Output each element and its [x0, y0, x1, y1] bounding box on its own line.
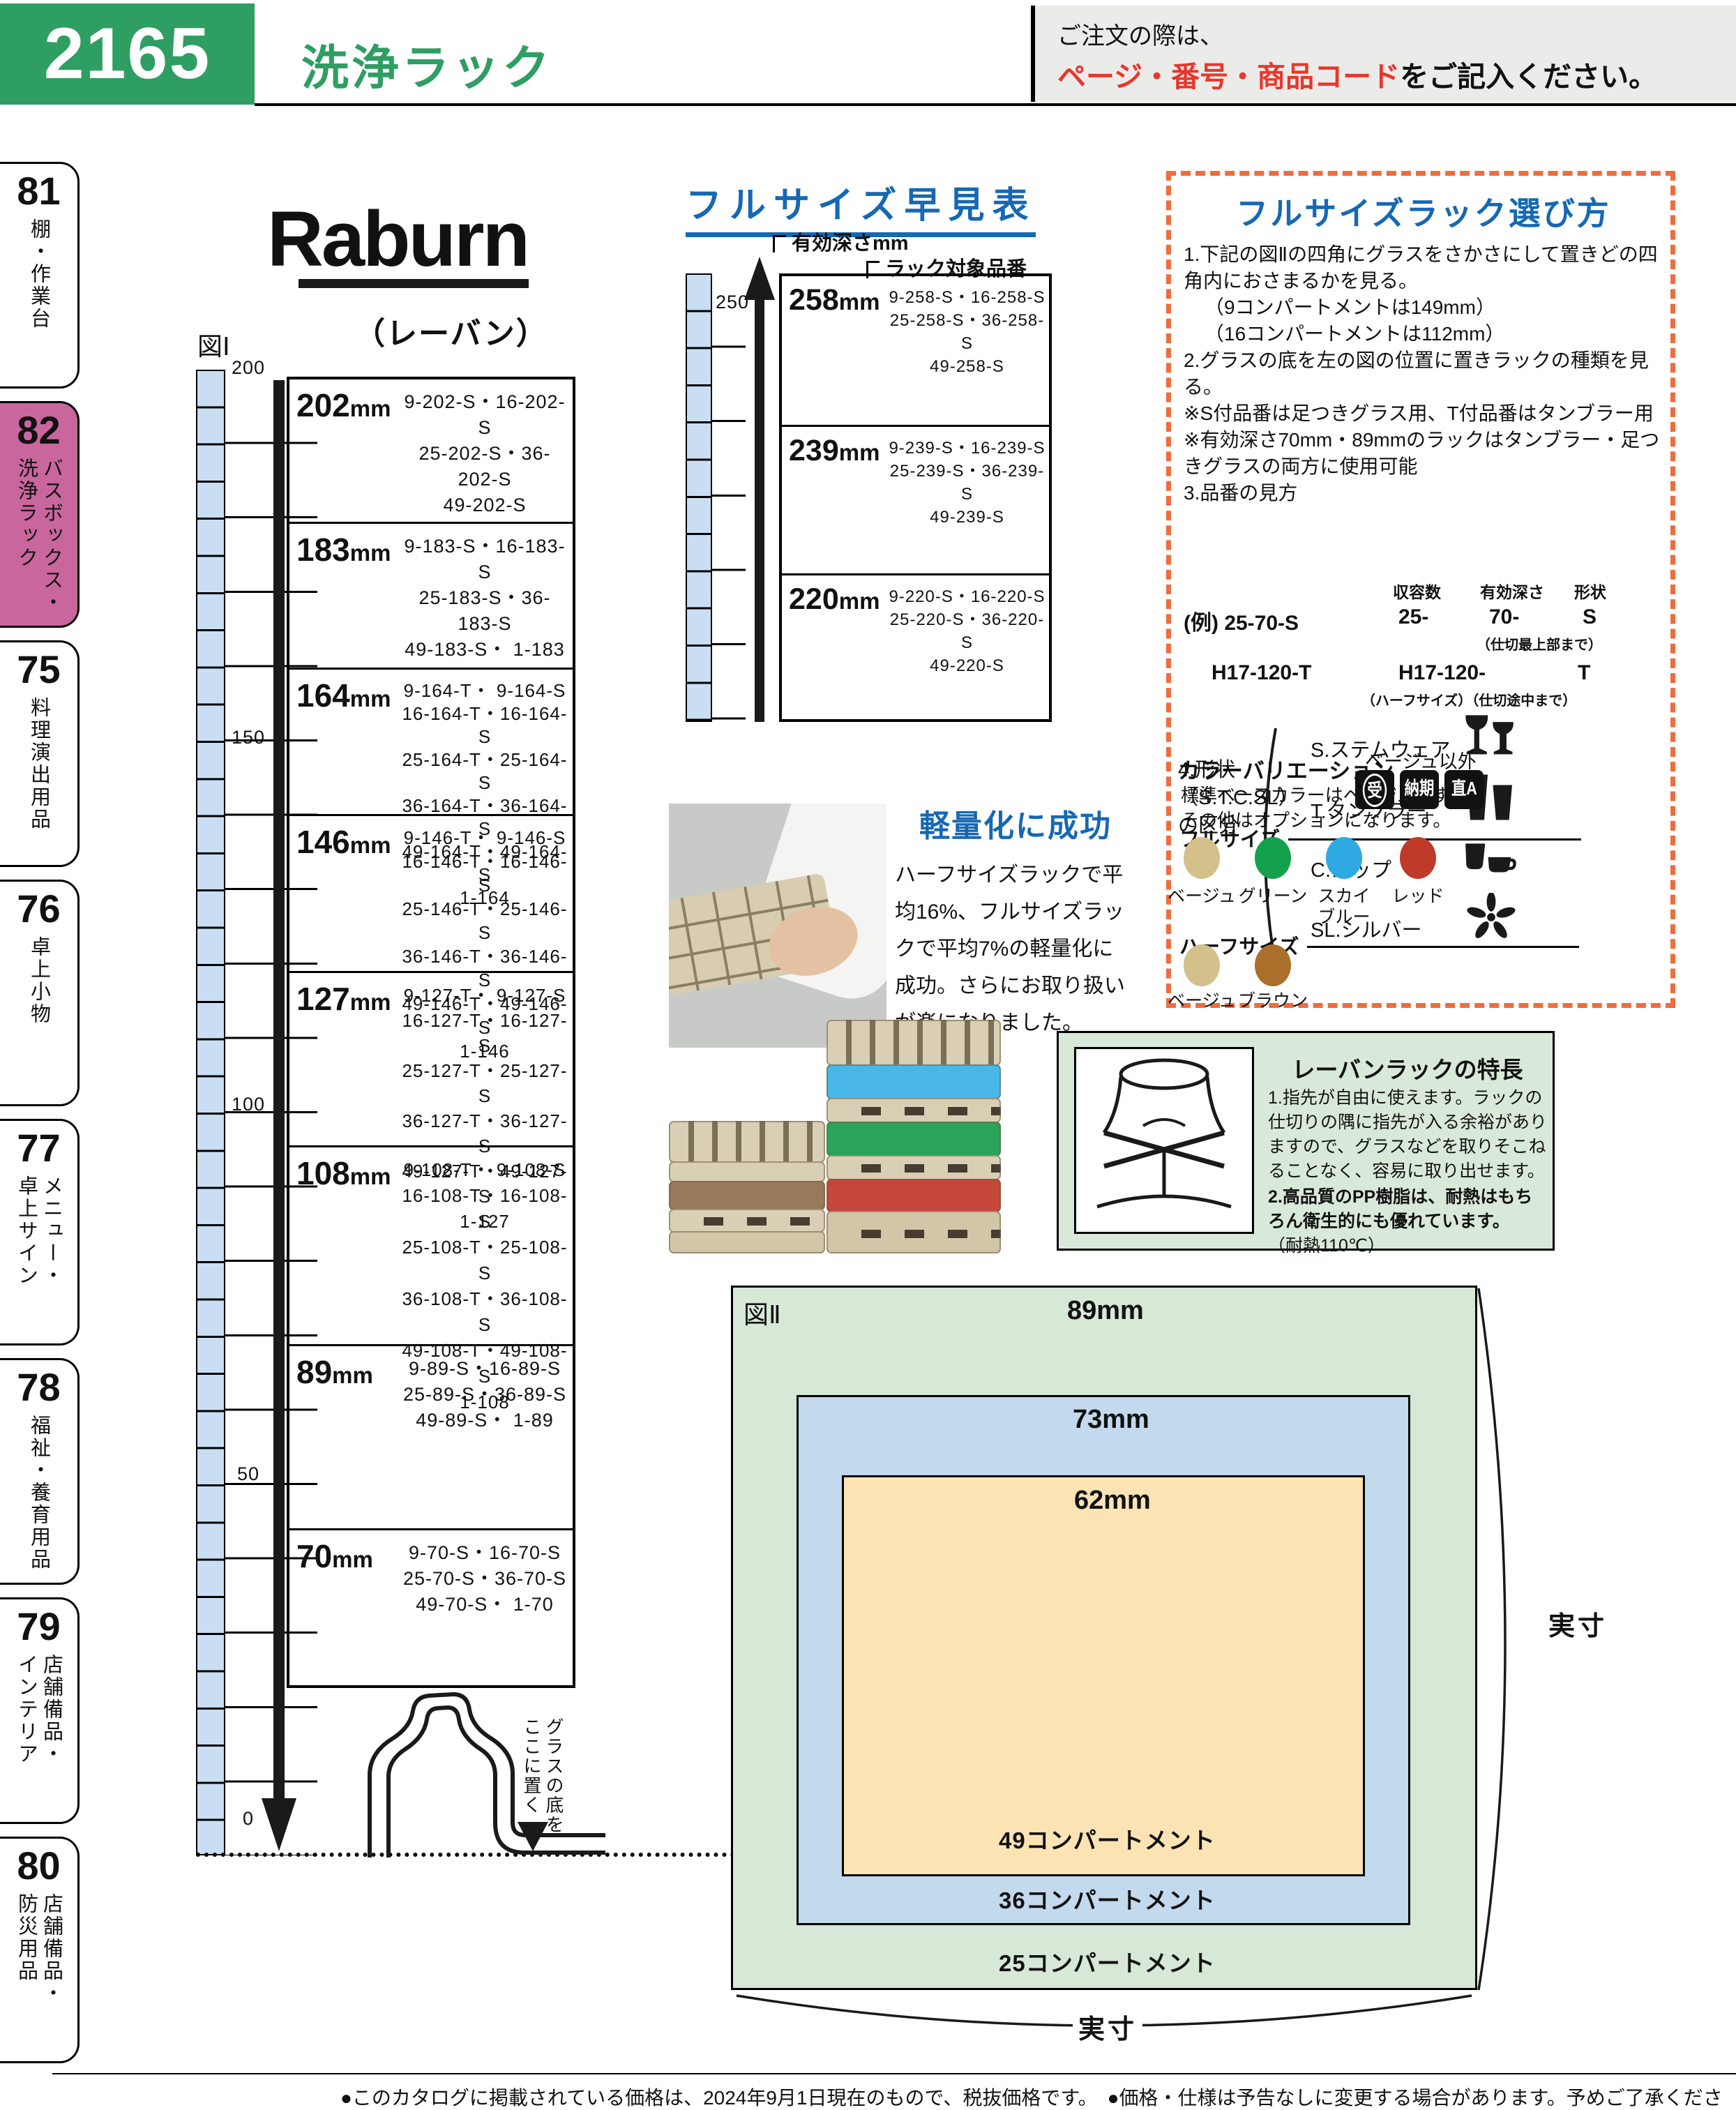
spec-value: H17-120-: [1398, 661, 1486, 685]
features-item2-note: （耐熱110℃）: [1268, 1236, 1385, 1256]
rack-band-beige: [669, 1231, 825, 1253]
footer-rule: [52, 2073, 1736, 2074]
sidebar-tab-77: 77メニュー・ 卓上サイン: [0, 1119, 80, 1346]
sidebar-tab-78: 78福祉・養育用品: [0, 1358, 80, 1585]
howto-note2: ※有効深さ70mm・89mmのラックはタンブラー・足つきグラスの両方に使用可能: [1184, 427, 1663, 480]
fig2-rect-49: [842, 1475, 1365, 1876]
glass-place-note: グラスの底を ここに置く: [520, 1717, 565, 1834]
rack-band-green: [827, 1122, 1001, 1156]
rack-band-beige: [669, 1161, 825, 1182]
swatch-label: レッド: [1383, 886, 1453, 907]
spec-header: 有効深さ: [1480, 579, 1544, 603]
howto-step2: 2.グラスの底を左の図の位置に置きラックの種類を見る。: [1184, 347, 1663, 400]
fig1-ruler: [196, 370, 225, 1855]
glass-place-arrow-icon: [518, 1822, 548, 1851]
howto-step1a: （9コンパートメントは149mm）: [1184, 294, 1663, 321]
spec-example1: (例) 25-70-S: [1184, 605, 1299, 636]
sidebar-tab-81: 81棚・作業台: [0, 162, 80, 389]
sidebar-tab-79: 79店舗備品・ インテリア: [0, 1597, 80, 1824]
tab-label: バスボックス・ 洗浄ラック: [14, 458, 64, 614]
howto-step3: 3.品番の見方: [1184, 480, 1663, 506]
fig1-size-table: 202mm 9-202-S・16-202-S25-202-S・36-202-S4…: [287, 377, 575, 1688]
tab-label: 福祉・養育用品: [27, 1415, 52, 1571]
spec-example2: H17-120-T: [1212, 661, 1311, 685]
lightweight-body: ハーフサイズラックで平均16%、フルサイズラックで平均7%の軽量化に成功。さらに…: [895, 857, 1125, 1041]
feature-illustration: [1074, 1047, 1254, 1234]
spec-value: 25-: [1398, 605, 1428, 629]
howto-note1: ※S付品番は足つきグラス用、T付品番はタンブラー用: [1184, 400, 1663, 427]
lightweight-photo: [669, 804, 886, 1048]
order-note-line2: ページ・番号・商品コードをご記入ください。: [1057, 53, 1657, 95]
swatch-label: スカイ ブルー: [1309, 886, 1379, 928]
ruler-tick-150: 150: [232, 727, 265, 748]
rack-band-beige: [827, 1155, 1001, 1180]
tab-number: 80: [0, 1839, 77, 1888]
ruler-tick-50: 50: [237, 1463, 259, 1485]
tab-number: 79: [0, 1599, 77, 1649]
racks-photo-left-stack: [669, 1121, 825, 1253]
spec-note: （ハーフサイズ）（仕切途中まで）: [1361, 689, 1576, 709]
fig2-36comp: 36コンパートメント: [999, 1882, 1216, 1915]
size-row-183: 183mm 9-183-S・16-183-S25-183-S・36-183-S4…: [289, 522, 573, 668]
tab-number: 81: [0, 164, 77, 213]
header-rule: [255, 103, 1736, 106]
racks-photo-right-stack: [827, 1020, 1001, 1253]
howto-step1: 1.下記の図Ⅱの四角にグラスをさかさにして置きどの四角内におさまるかを見る。: [1184, 241, 1663, 294]
swatch-green: [1255, 837, 1291, 879]
depth-arrow-shaft: [273, 380, 285, 1800]
page-number: 2165: [0, 3, 255, 105]
size-row-127: 127mm 9-127-T・ 9-127-S16-127-T・16-127-S2…: [289, 971, 573, 1145]
quick-ruler-ticks: [712, 273, 746, 722]
badge-chokuA-icon: 直A: [1444, 770, 1484, 809]
tab-label: 棚・作業台: [27, 218, 52, 330]
order-note-suffix: をご記入ください。: [1400, 61, 1657, 93]
tab-number: 82: [0, 403, 77, 453]
halfsize-label: ハーフサイズ: [1179, 930, 1579, 960]
fig2-25comp: 25コンパートメント: [999, 1945, 1216, 1978]
size-row-89: 89mm 9-89-S・16-89-S25-89-S・36-89-S49-89-…: [289, 1344, 573, 1528]
fullsize-label: フルサイズ: [1179, 823, 1581, 852]
howto-title: フルサイズラック選び方: [1184, 188, 1663, 234]
tab-label: 料理演出用品: [27, 697, 52, 831]
swatch-beige: [1184, 837, 1220, 879]
sidebar-tab-75: 75料理演出用品: [0, 640, 80, 867]
tab-number: 78: [0, 1360, 77, 1410]
tab-label: 卓上小物: [27, 936, 52, 1025]
swatch-label: ブラウン: [1238, 990, 1308, 1011]
size-row-239: 239mm 9-239-S・16-239-S25-239-S・36-239-S4…: [782, 425, 1049, 573]
rack-lattice: [827, 1020, 1001, 1066]
depth-arrow-down-icon: [262, 1798, 296, 1851]
tab-number: 76: [0, 882, 77, 931]
order-note-red: ページ・番号・商品コード: [1057, 61, 1400, 93]
ruler-tick-200: 200: [232, 357, 265, 379]
glass-outline-drawing: [349, 1671, 607, 1857]
features-title: レーバンラックの特長: [1268, 1051, 1547, 1085]
fig2-right-brace: [1472, 1286, 1548, 2046]
tab-label: 店舗備品・ インテリア: [14, 1654, 64, 1765]
brand-logo: Raburn: [267, 194, 528, 284]
fig2-73mm: 73mm: [1073, 1405, 1149, 1435]
swatch-brown: [1255, 944, 1291, 986]
page-title: 洗浄ラック: [301, 29, 552, 98]
spec-value: S: [1583, 605, 1597, 629]
rack-band-brown: [669, 1181, 825, 1210]
brand-logo-underline: [299, 279, 529, 288]
actual-size-right: 実寸: [1543, 1604, 1613, 1643]
swatch-beige-half: [1184, 944, 1220, 986]
swatch-skyblue: [1326, 837, 1362, 879]
order-note-line1: ご注文の際は、: [1057, 17, 1223, 51]
spec-header: 形状: [1574, 579, 1606, 603]
badge-nouki-icon: 納期: [1400, 770, 1439, 809]
howto-box: フルサイズラック選び方 1.下記の図Ⅱの四角にグラスをさかさにして置きどの四角内…: [1166, 171, 1675, 1008]
tab-number: 75: [0, 642, 77, 692]
rack-band-beige: [669, 1209, 825, 1233]
size-row-220: 220mm 9-220-S・16-220-S25-220-S・36-220-S4…: [782, 573, 1049, 719]
sidebar-tab-76: 76卓上小物: [0, 880, 80, 1106]
fig2-49comp: 49コンパートメント: [999, 1822, 1216, 1855]
fig2-89mm: 89mm: [1067, 1296, 1144, 1326]
sidebar-tab-80: 80店舗備品・ 防災用品: [0, 1837, 80, 2063]
corner-bracket-icon: [773, 235, 786, 253]
order-note-box: ご注文の際は、 ページ・番号・商品コードをご記入ください。: [1031, 6, 1736, 102]
spec-value: T: [1578, 661, 1590, 685]
lightweight-title: 軽量化に成功: [919, 801, 1112, 845]
swatch-red: [1400, 837, 1436, 879]
swatch-label: グリーン: [1238, 886, 1308, 907]
quick-size-table: 258mm 9-258-S・16-258-S25-258-S・36-258-S4…: [779, 273, 1052, 722]
size-row-146: 146mm 9-146-T・ 9-146-S16-146-T・16-146-S2…: [289, 814, 573, 971]
tab-label: メニュー・ 卓上サイン: [14, 1175, 64, 1287]
up-arrow-icon: [744, 257, 775, 300]
ruler-tick-0: 0: [243, 1808, 254, 1830]
rack-band-beige: [827, 1211, 1001, 1253]
spec-value: 70-: [1489, 605, 1519, 629]
rack-lattice: [669, 1121, 825, 1163]
badge-uke-icon: 受: [1355, 770, 1394, 809]
features-item1: 1.指先が自由に使えます。ラックの仕切りの隅に指先が入る余裕がありますので、グラ…: [1268, 1086, 1548, 1184]
actual-size-bottom: 実寸: [1073, 2007, 1142, 2046]
rack-band-skyblue: [827, 1064, 1001, 1099]
size-row-70: 70mm 9-70-S・16-70-S25-70-S・36-70-S49-70-…: [289, 1528, 573, 1685]
size-row-164: 164mm 9-164-T・ 9-164-S16-164-T・16-164-S2…: [289, 668, 573, 814]
fig2-62mm: 62mm: [1074, 1486, 1151, 1516]
features-box: レーバンラックの特長 1.指先が自由に使えます。ラックの仕切りの隅に指先が入る余…: [1057, 1031, 1555, 1251]
spec-header: 収容数: [1393, 579, 1441, 603]
size-row-108: 108mm 9-108-T・ 9-108-S16-108-T・16-108-S2…: [289, 1145, 573, 1344]
up-arrow-shaft: [755, 299, 764, 722]
brand-kana: （レーバン）: [354, 308, 548, 353]
size-row-258: 258mm 9-258-S・16-258-S25-258-S・36-258-S4…: [782, 276, 1049, 425]
fig1-label: 図Ⅰ: [197, 326, 230, 363]
howto-step1b: （16コンパートメントは112mm）: [1184, 321, 1663, 347]
spec-note: （仕切最上部まで）: [1477, 633, 1602, 654]
swatch-label: ベージュ: [1167, 886, 1237, 907]
tab-label: 店舗備品・ 防災用品: [14, 1893, 64, 2005]
ruler-tick-100: 100: [232, 1094, 265, 1115]
fig2-label: 図Ⅱ: [744, 1295, 781, 1331]
depth-label: 有効深さmm: [773, 227, 909, 256]
tab-number: 77: [0, 1121, 77, 1170]
size-row-202: 202mm 9-202-S・16-202-S25-202-S・36-202-S4…: [289, 379, 573, 522]
features-item2: 2.高品質のPP樹脂は、耐熱はもちろん衛生的にも優れています。（耐熱110℃）: [1268, 1185, 1548, 1258]
rack-band-red: [827, 1179, 1001, 1212]
catalog-page: 2165 洗浄ラック ご注文の際は、 ページ・番号・商品コードをご記入ください。…: [0, 0, 1736, 2110]
sidebar-tab-82-active: 82バスボックス・ 洗浄ラック: [0, 401, 80, 628]
swatch-label: ベージュ: [1167, 990, 1237, 1011]
footer-note: ●このカタログに掲載されている価格は、2024年9月1日現在のもので、税抜価格で…: [340, 2083, 1736, 2110]
quick-ruler: [686, 273, 712, 722]
rack-band-beige: [827, 1098, 1001, 1123]
